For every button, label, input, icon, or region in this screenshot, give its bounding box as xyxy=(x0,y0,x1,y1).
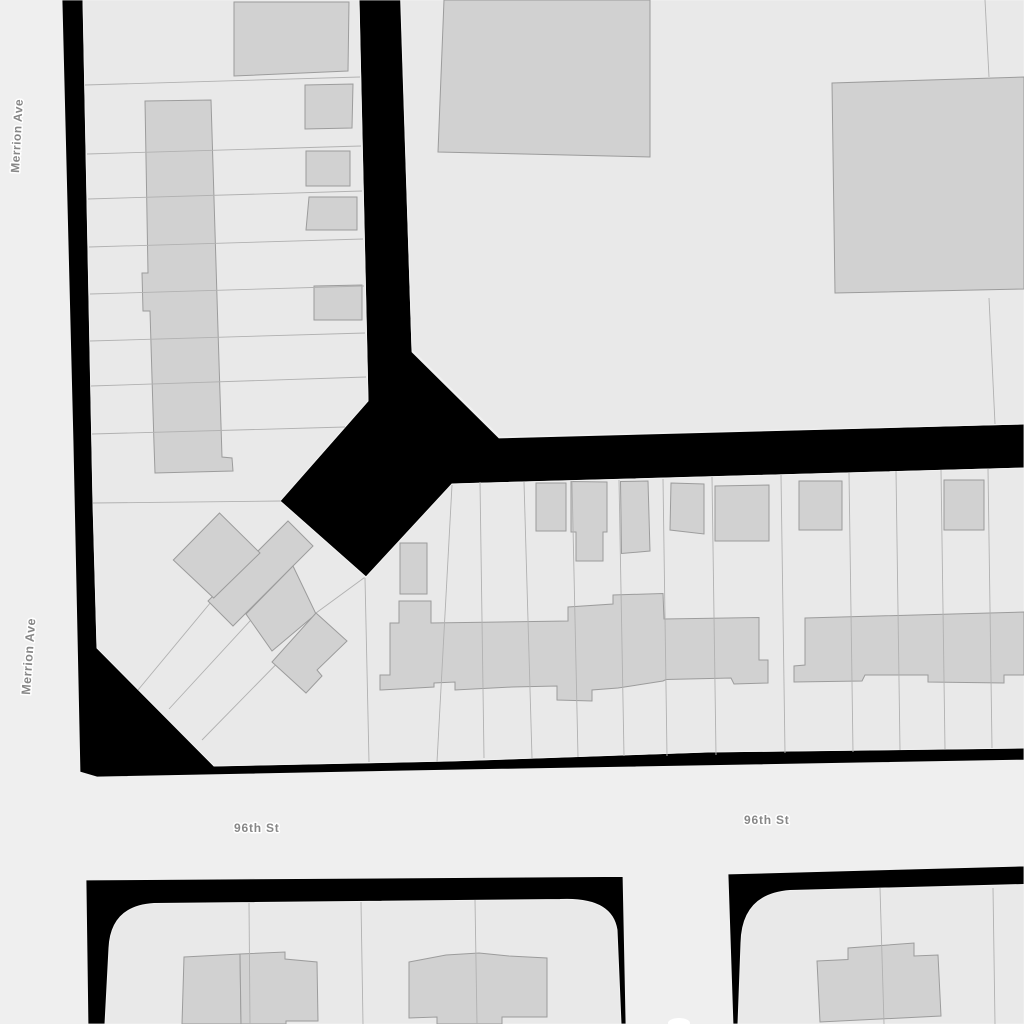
svg-text:96th St: 96th St xyxy=(744,813,790,827)
svg-text:96th St: 96th St xyxy=(234,821,280,835)
